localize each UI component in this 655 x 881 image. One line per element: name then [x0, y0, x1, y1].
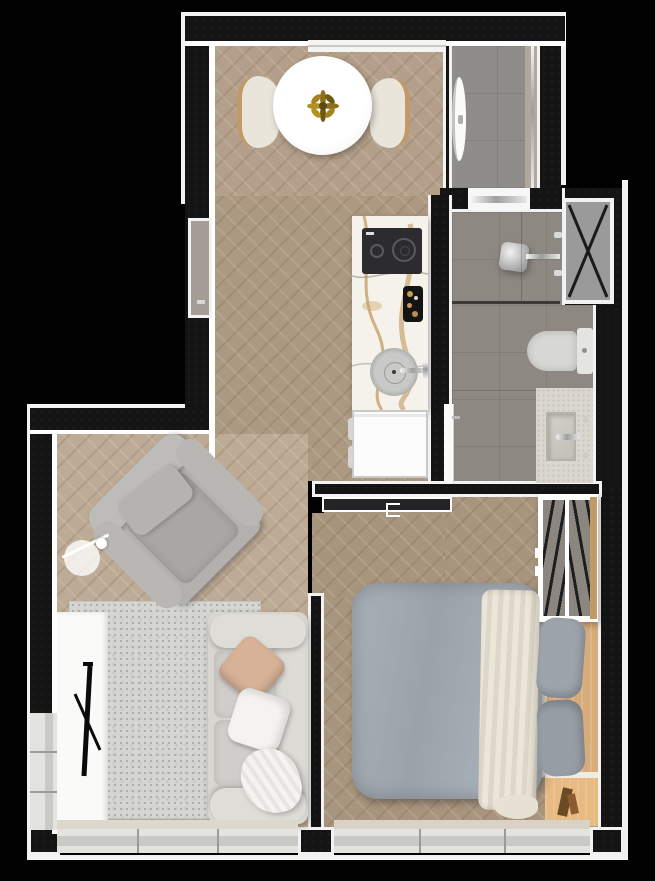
tv	[70, 662, 104, 780]
nightstand	[545, 778, 598, 826]
sink-drain	[392, 370, 396, 374]
bath-grout-v1	[521, 212, 522, 301]
floor-lamp-knob	[96, 538, 107, 549]
wardrobe-knob-2	[535, 566, 540, 576]
threshold-strip	[471, 196, 527, 203]
niche-handle	[197, 300, 205, 304]
shower-valve-bottom	[554, 270, 562, 276]
mullion	[419, 829, 421, 853]
fridge-handle-2	[348, 446, 353, 468]
bed-blanket	[478, 590, 540, 811]
cooktop	[362, 228, 422, 274]
vanity-faucet	[556, 434, 580, 440]
shower-valve-top	[554, 232, 562, 238]
wall-bedroom-right	[598, 485, 622, 855]
burner-small	[370, 244, 384, 258]
vanity-handle-bottom	[582, 452, 589, 459]
mullion	[137, 829, 139, 853]
cookie	[407, 291, 413, 297]
toilet-tank	[577, 328, 593, 374]
hall-door-track	[531, 46, 534, 188]
flush-button	[582, 348, 587, 353]
trim-living-top-inner	[30, 430, 215, 434]
window-sill-bedroom	[334, 829, 590, 853]
ventilation-shaft	[562, 198, 614, 304]
wardrobe-wood-strip	[590, 497, 597, 619]
wall-pillar-bottom	[298, 827, 334, 855]
wall-partition-living-bedroom	[308, 593, 324, 833]
window-left-band	[45, 713, 53, 830]
window-glass-line	[308, 45, 446, 47]
cookie	[414, 296, 418, 300]
window-left-mullion-2	[30, 791, 57, 793]
window-dining-top	[308, 40, 446, 52]
wardrobe-section-left	[543, 500, 565, 616]
entry-door-leaf	[452, 77, 466, 161]
sill-band	[334, 836, 590, 846]
bathroom-door-leaf	[444, 404, 454, 483]
window-sill-living	[57, 829, 298, 853]
mullion	[504, 829, 506, 853]
wall-hall-right	[537, 46, 561, 188]
serving-tray	[403, 286, 423, 322]
bed-pillow-1	[535, 616, 586, 699]
shaft-x-symbol	[566, 202, 610, 300]
entry-door-handle	[458, 115, 463, 124]
table-plant	[303, 86, 343, 126]
baseboard-living	[57, 820, 298, 829]
cookie	[407, 303, 412, 308]
faucet-base	[423, 362, 428, 378]
nightstand-item-2	[567, 793, 579, 814]
sliding-door-handle	[386, 503, 400, 517]
baseboard-bedroom	[334, 820, 590, 829]
cookie	[412, 311, 418, 317]
toilet-bowl	[527, 331, 577, 371]
vanity-handle-top	[582, 416, 589, 423]
wall-hall-left	[443, 46, 452, 188]
floor-plan	[0, 0, 655, 881]
mullion	[217, 829, 219, 853]
sill-band	[57, 836, 298, 846]
shaft-interior	[566, 202, 610, 300]
wardrobe	[538, 494, 598, 622]
wall-corner-bottom-right	[590, 827, 624, 855]
shower-arm	[526, 254, 560, 259]
window-left-mullion	[30, 751, 57, 753]
dining-chair-right	[370, 78, 410, 148]
outer-trim-right	[622, 180, 628, 856]
wall-bath-right-lower	[593, 305, 622, 485]
shower-glass-partition	[452, 301, 560, 304]
fridge-handle	[348, 418, 353, 440]
wardrobe-section-right	[569, 500, 590, 616]
outer-trim-bottom	[27, 855, 628, 860]
refrigerator	[352, 410, 428, 478]
window-left	[30, 713, 57, 830]
cooktop-knob-strip	[366, 232, 374, 235]
bathroom-door-handle	[452, 416, 460, 419]
wardrobe-knob-1	[535, 548, 540, 558]
armchair	[90, 435, 270, 615]
vanity-counter	[536, 388, 593, 483]
bath-threshold	[468, 188, 530, 210]
burner-large	[392, 238, 416, 262]
fridge-door-line	[354, 414, 426, 417]
bed-blanket-tail	[494, 795, 538, 819]
bed-pillow-2	[536, 699, 586, 777]
